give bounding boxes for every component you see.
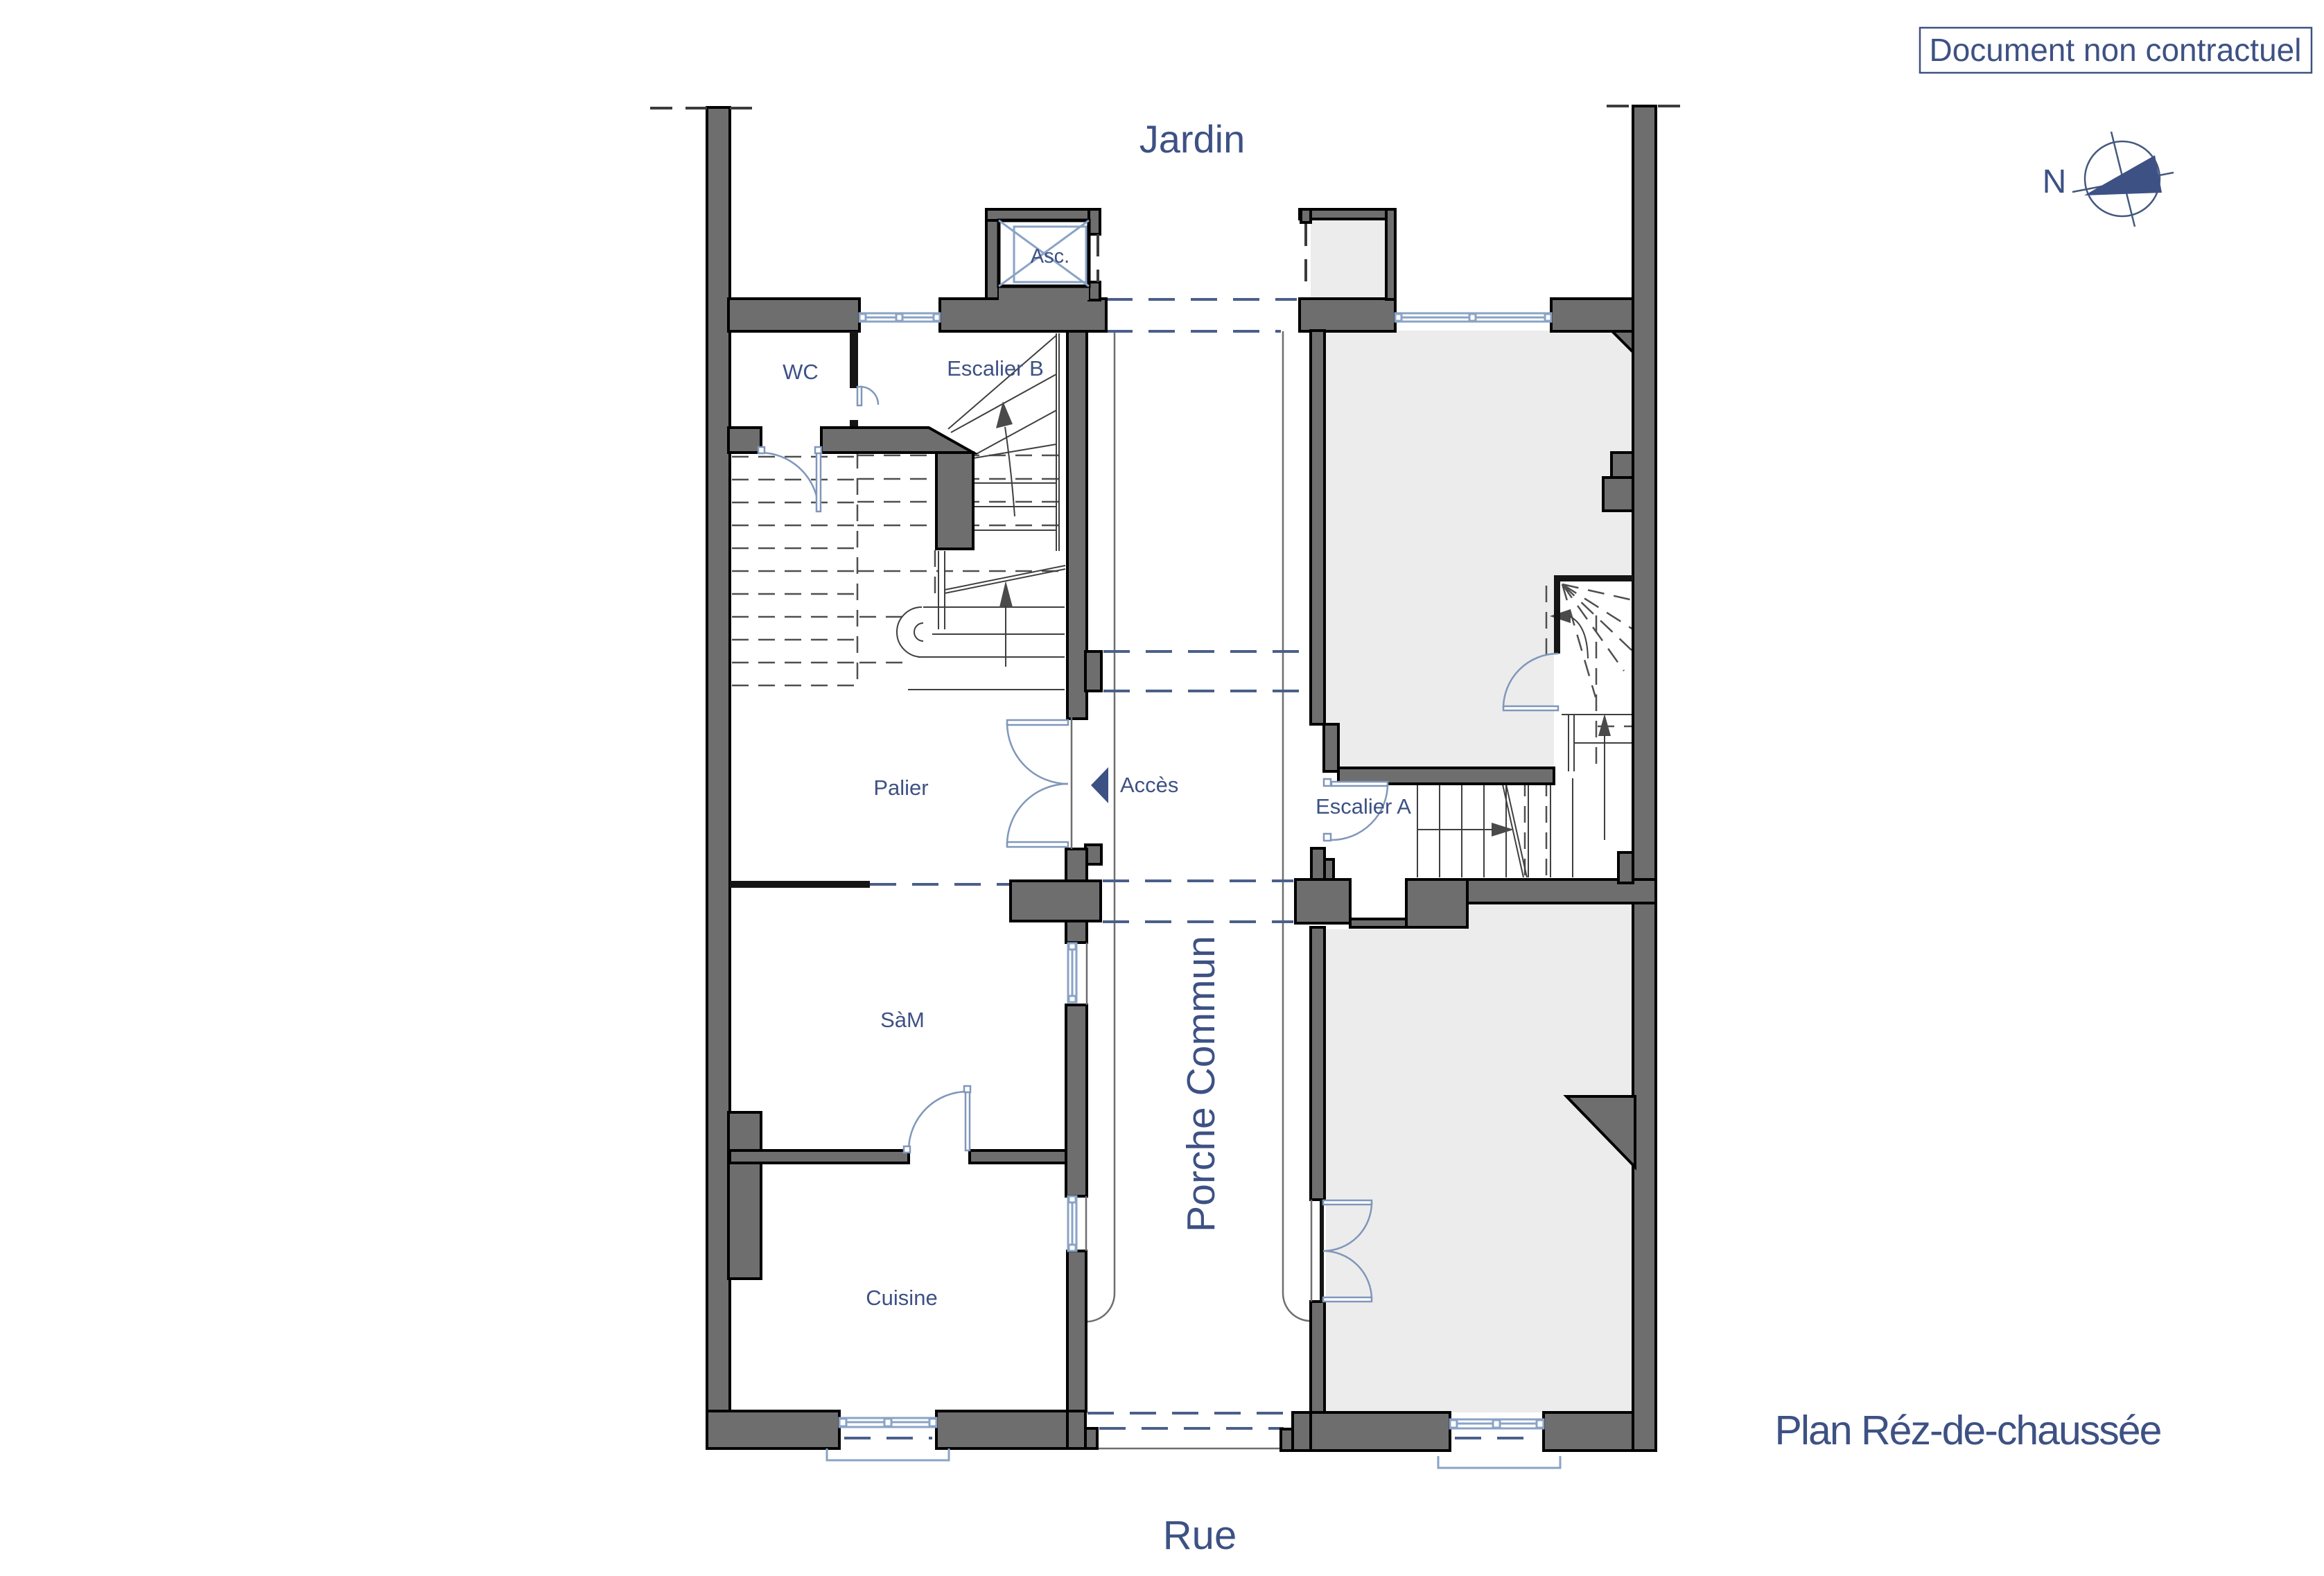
- svg-text:Accès: Accès: [1120, 773, 1178, 797]
- svg-text:Jardin: Jardin: [1139, 117, 1246, 161]
- svg-text:Rue: Rue: [1163, 1513, 1237, 1558]
- svg-text:Palier: Palier: [873, 776, 928, 800]
- svg-text:Escalier A: Escalier A: [1316, 794, 1411, 818]
- svg-text:Escalier B: Escalier B: [947, 356, 1044, 380]
- svg-text:Porche Commun: Porche Commun: [1179, 936, 1223, 1232]
- svg-text:Asc.: Asc.: [1031, 245, 1069, 268]
- svg-text:Document non contractuel: Document non contractuel: [1930, 32, 2302, 68]
- svg-text:Cuisine: Cuisine: [866, 1286, 937, 1310]
- svg-text:WC: WC: [783, 360, 819, 384]
- svg-text:Plan Réz-de-chaussée: Plan Réz-de-chaussée: [1775, 1408, 2161, 1453]
- svg-text:N: N: [2043, 164, 2067, 200]
- svg-text:SàM: SàM: [880, 1008, 925, 1032]
